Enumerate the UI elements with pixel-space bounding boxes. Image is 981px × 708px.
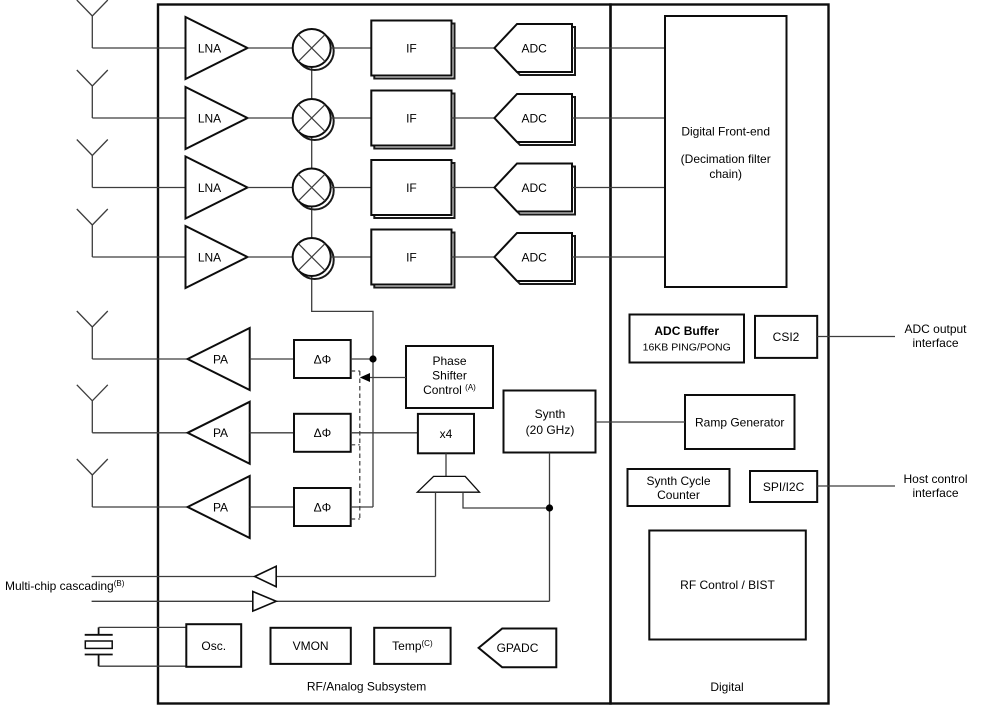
svg-text:IF: IF xyxy=(406,181,417,195)
svg-text:ΔΦ: ΔΦ xyxy=(314,352,332,366)
svg-text:chain): chain) xyxy=(709,167,742,181)
svg-text:Digital Front-end: Digital Front-end xyxy=(681,125,770,139)
svg-text:PA: PA xyxy=(213,352,228,366)
svg-text:ADC Buffer: ADC Buffer xyxy=(654,324,719,338)
svg-text:RF Control / BIST: RF Control / BIST xyxy=(680,578,775,592)
svg-text:Host control: Host control xyxy=(903,472,967,486)
svg-text:x4: x4 xyxy=(440,427,453,441)
svg-text:16KB PING/PONG: 16KB PING/PONG xyxy=(643,342,731,354)
svg-text:ADC: ADC xyxy=(522,111,548,125)
svg-text:LNA: LNA xyxy=(198,41,221,55)
svg-text:LNA: LNA xyxy=(198,111,221,125)
svg-text:(Decimation filter: (Decimation filter xyxy=(681,152,771,166)
svg-text:(20 GHz): (20 GHz) xyxy=(526,423,575,437)
svg-text:Synth: Synth xyxy=(535,407,566,421)
svg-text:ΔΦ: ΔΦ xyxy=(314,500,332,514)
svg-text:ADC output: ADC output xyxy=(904,322,967,336)
svg-text:SPI/I2C: SPI/I2C xyxy=(763,480,805,494)
svg-text:ADC: ADC xyxy=(522,41,548,55)
svg-text:ADC: ADC xyxy=(522,181,548,195)
svg-text:LNA: LNA xyxy=(198,181,221,195)
svg-text:Digital: Digital xyxy=(710,680,743,694)
svg-text:IF: IF xyxy=(406,250,417,264)
svg-text:Multi-chip cascading(B): Multi-chip cascading(B) xyxy=(5,579,125,593)
svg-text:LNA: LNA xyxy=(198,250,221,264)
svg-text:VMON: VMON xyxy=(293,639,329,653)
svg-text:GPADC: GPADC xyxy=(497,641,539,655)
svg-text:Counter: Counter xyxy=(657,488,700,502)
svg-text:ΔΦ: ΔΦ xyxy=(314,426,332,440)
svg-text:IF: IF xyxy=(406,41,417,55)
svg-text:Synth Cycle: Synth Cycle xyxy=(646,474,710,488)
svg-text:ADC: ADC xyxy=(522,250,548,264)
svg-text:Ramp Generator: Ramp Generator xyxy=(695,415,784,429)
svg-text:IF: IF xyxy=(406,111,417,125)
svg-text:Osc.: Osc. xyxy=(201,639,226,653)
svg-text:PA: PA xyxy=(213,500,228,514)
svg-text:CSI2: CSI2 xyxy=(773,330,800,344)
svg-text:interface: interface xyxy=(912,486,958,500)
svg-text:Phase: Phase xyxy=(432,354,466,368)
svg-text:RF/Analog Subsystem: RF/Analog Subsystem xyxy=(307,680,426,694)
svg-text:PA: PA xyxy=(213,426,228,440)
svg-text:Shifter: Shifter xyxy=(432,369,467,383)
svg-text:interface: interface xyxy=(912,336,958,350)
